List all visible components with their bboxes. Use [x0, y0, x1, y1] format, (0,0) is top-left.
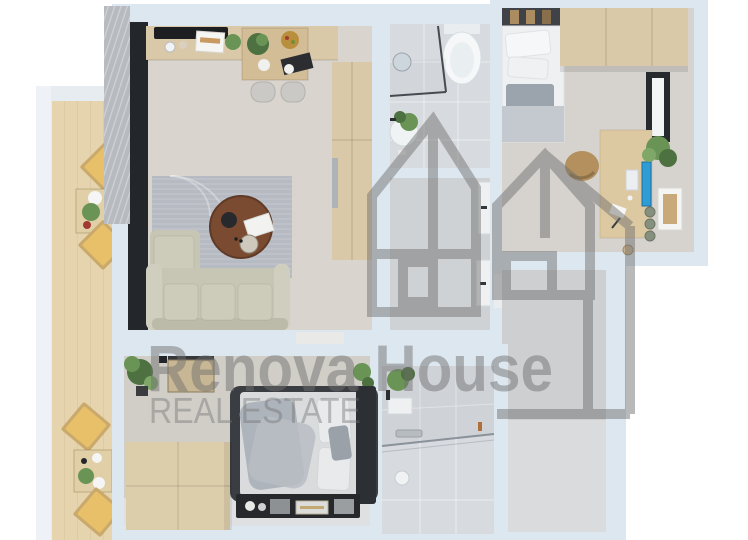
floor-plan-render: Renova House REAL ESTATE [0, 0, 748, 540]
plant [82, 203, 100, 221]
door-handle [481, 206, 487, 209]
towel-hook [478, 422, 482, 431]
oven-handle [332, 158, 338, 208]
blanket [502, 106, 564, 142]
shelf-wood [510, 10, 519, 24]
black-bowl [221, 212, 237, 228]
bedroom-right [490, 0, 708, 266]
decor-gold [300, 506, 324, 509]
plate [88, 191, 102, 205]
shower-drain [396, 430, 422, 437]
monitor [642, 162, 651, 206]
keyboard [626, 170, 638, 190]
plant [225, 34, 241, 50]
cup [81, 458, 87, 464]
seat-cushion [164, 284, 198, 320]
picture-art [663, 194, 677, 224]
fruit [285, 36, 289, 40]
plant [124, 356, 140, 372]
fruit [291, 40, 295, 44]
drawer-knob [645, 207, 655, 217]
pillow [505, 30, 551, 58]
pillow [507, 57, 548, 80]
drawer-knob [645, 219, 655, 229]
plate [258, 59, 270, 71]
plant [78, 468, 94, 484]
bathroom-top [378, 4, 504, 182]
living-room-kitchen [104, 4, 384, 358]
tray [240, 235, 258, 253]
drawer-knob [645, 231, 655, 241]
decor-vase [245, 501, 255, 511]
curtain-folds [104, 6, 130, 224]
candle [239, 239, 242, 242]
fruit-bowl [281, 31, 299, 49]
dining-chair [251, 82, 275, 102]
wardrobe-shadow [224, 442, 232, 530]
kettle [165, 42, 175, 52]
plant [659, 149, 677, 167]
plant [642, 148, 656, 162]
shelf-wood [526, 10, 535, 24]
plant [394, 111, 406, 123]
candle [234, 237, 237, 240]
shower-head [395, 471, 409, 485]
floor-plan-svg: Renova House REAL ESTATE [0, 0, 748, 540]
balcony-table [74, 450, 112, 492]
empty-room-floor [502, 420, 606, 532]
window-glass [652, 78, 664, 136]
dining-chair [281, 82, 305, 102]
watermark-tagline: REAL ESTATE [149, 390, 361, 431]
decor-box [334, 499, 354, 514]
plate [92, 453, 102, 463]
plate [93, 477, 105, 489]
balcony-railing [36, 86, 51, 540]
plate [284, 64, 294, 74]
faucet [390, 118, 396, 121]
mirror [393, 53, 411, 71]
seat-cushion [238, 284, 272, 320]
decor-box [270, 499, 290, 514]
window-glass [128, 22, 148, 334]
cutting-board [195, 31, 224, 53]
shelf-wood [542, 10, 551, 24]
plate [179, 41, 187, 49]
red-dish [83, 221, 91, 229]
wardrobe-shadow [560, 66, 688, 72]
seat-cushion [201, 284, 235, 320]
mouse [628, 196, 633, 201]
toilet-seat [450, 42, 474, 78]
wardrobe [560, 8, 688, 66]
plant-leaf [256, 34, 268, 46]
decor-vase [258, 503, 266, 511]
